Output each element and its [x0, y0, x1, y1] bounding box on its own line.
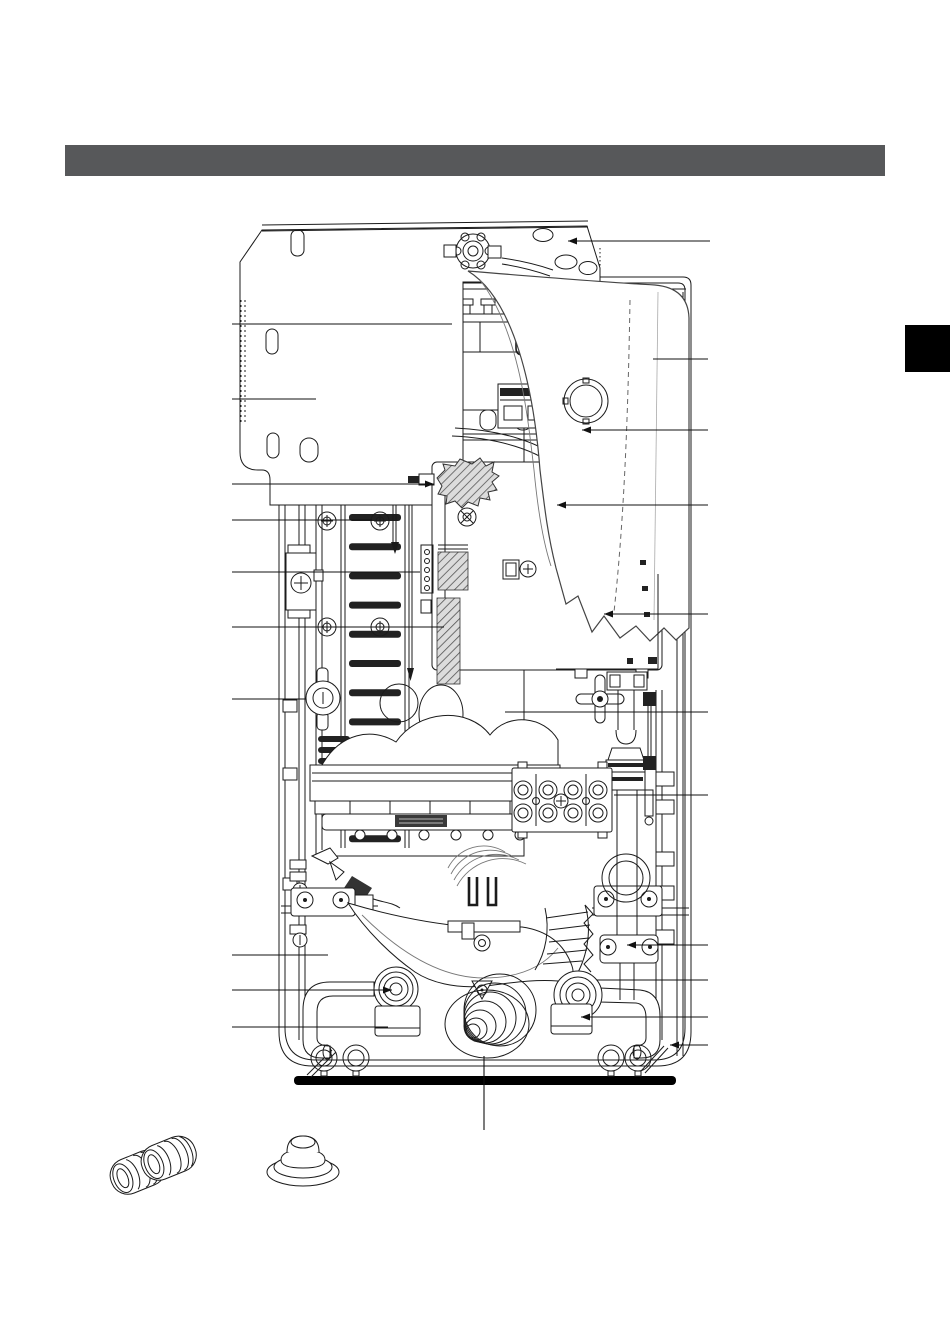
valve-label [395, 815, 447, 827]
thermostat-bracket [286, 545, 323, 618]
fin [349, 602, 401, 609]
terminal-block [512, 762, 612, 838]
fin [349, 718, 401, 725]
u-channels [469, 877, 496, 905]
callout-r10 [581, 1014, 708, 1021]
flow-sensor [306, 668, 340, 730]
base-band [294, 1076, 676, 1085]
manual-page [0, 0, 950, 1344]
link-rod [643, 692, 656, 770]
appliance-internal-diagram [0, 0, 950, 1344]
fin [349, 572, 401, 579]
bracket-notches [656, 772, 674, 944]
fin [349, 689, 401, 696]
fin [349, 660, 401, 667]
wall-tab [283, 700, 297, 712]
inset-ribbed-bushings [105, 1131, 201, 1199]
inset-cone-grommet [267, 1136, 339, 1186]
wall-tab [283, 768, 297, 780]
mount-crossbars [281, 886, 689, 916]
water-pipe-assembly [576, 672, 658, 1000]
